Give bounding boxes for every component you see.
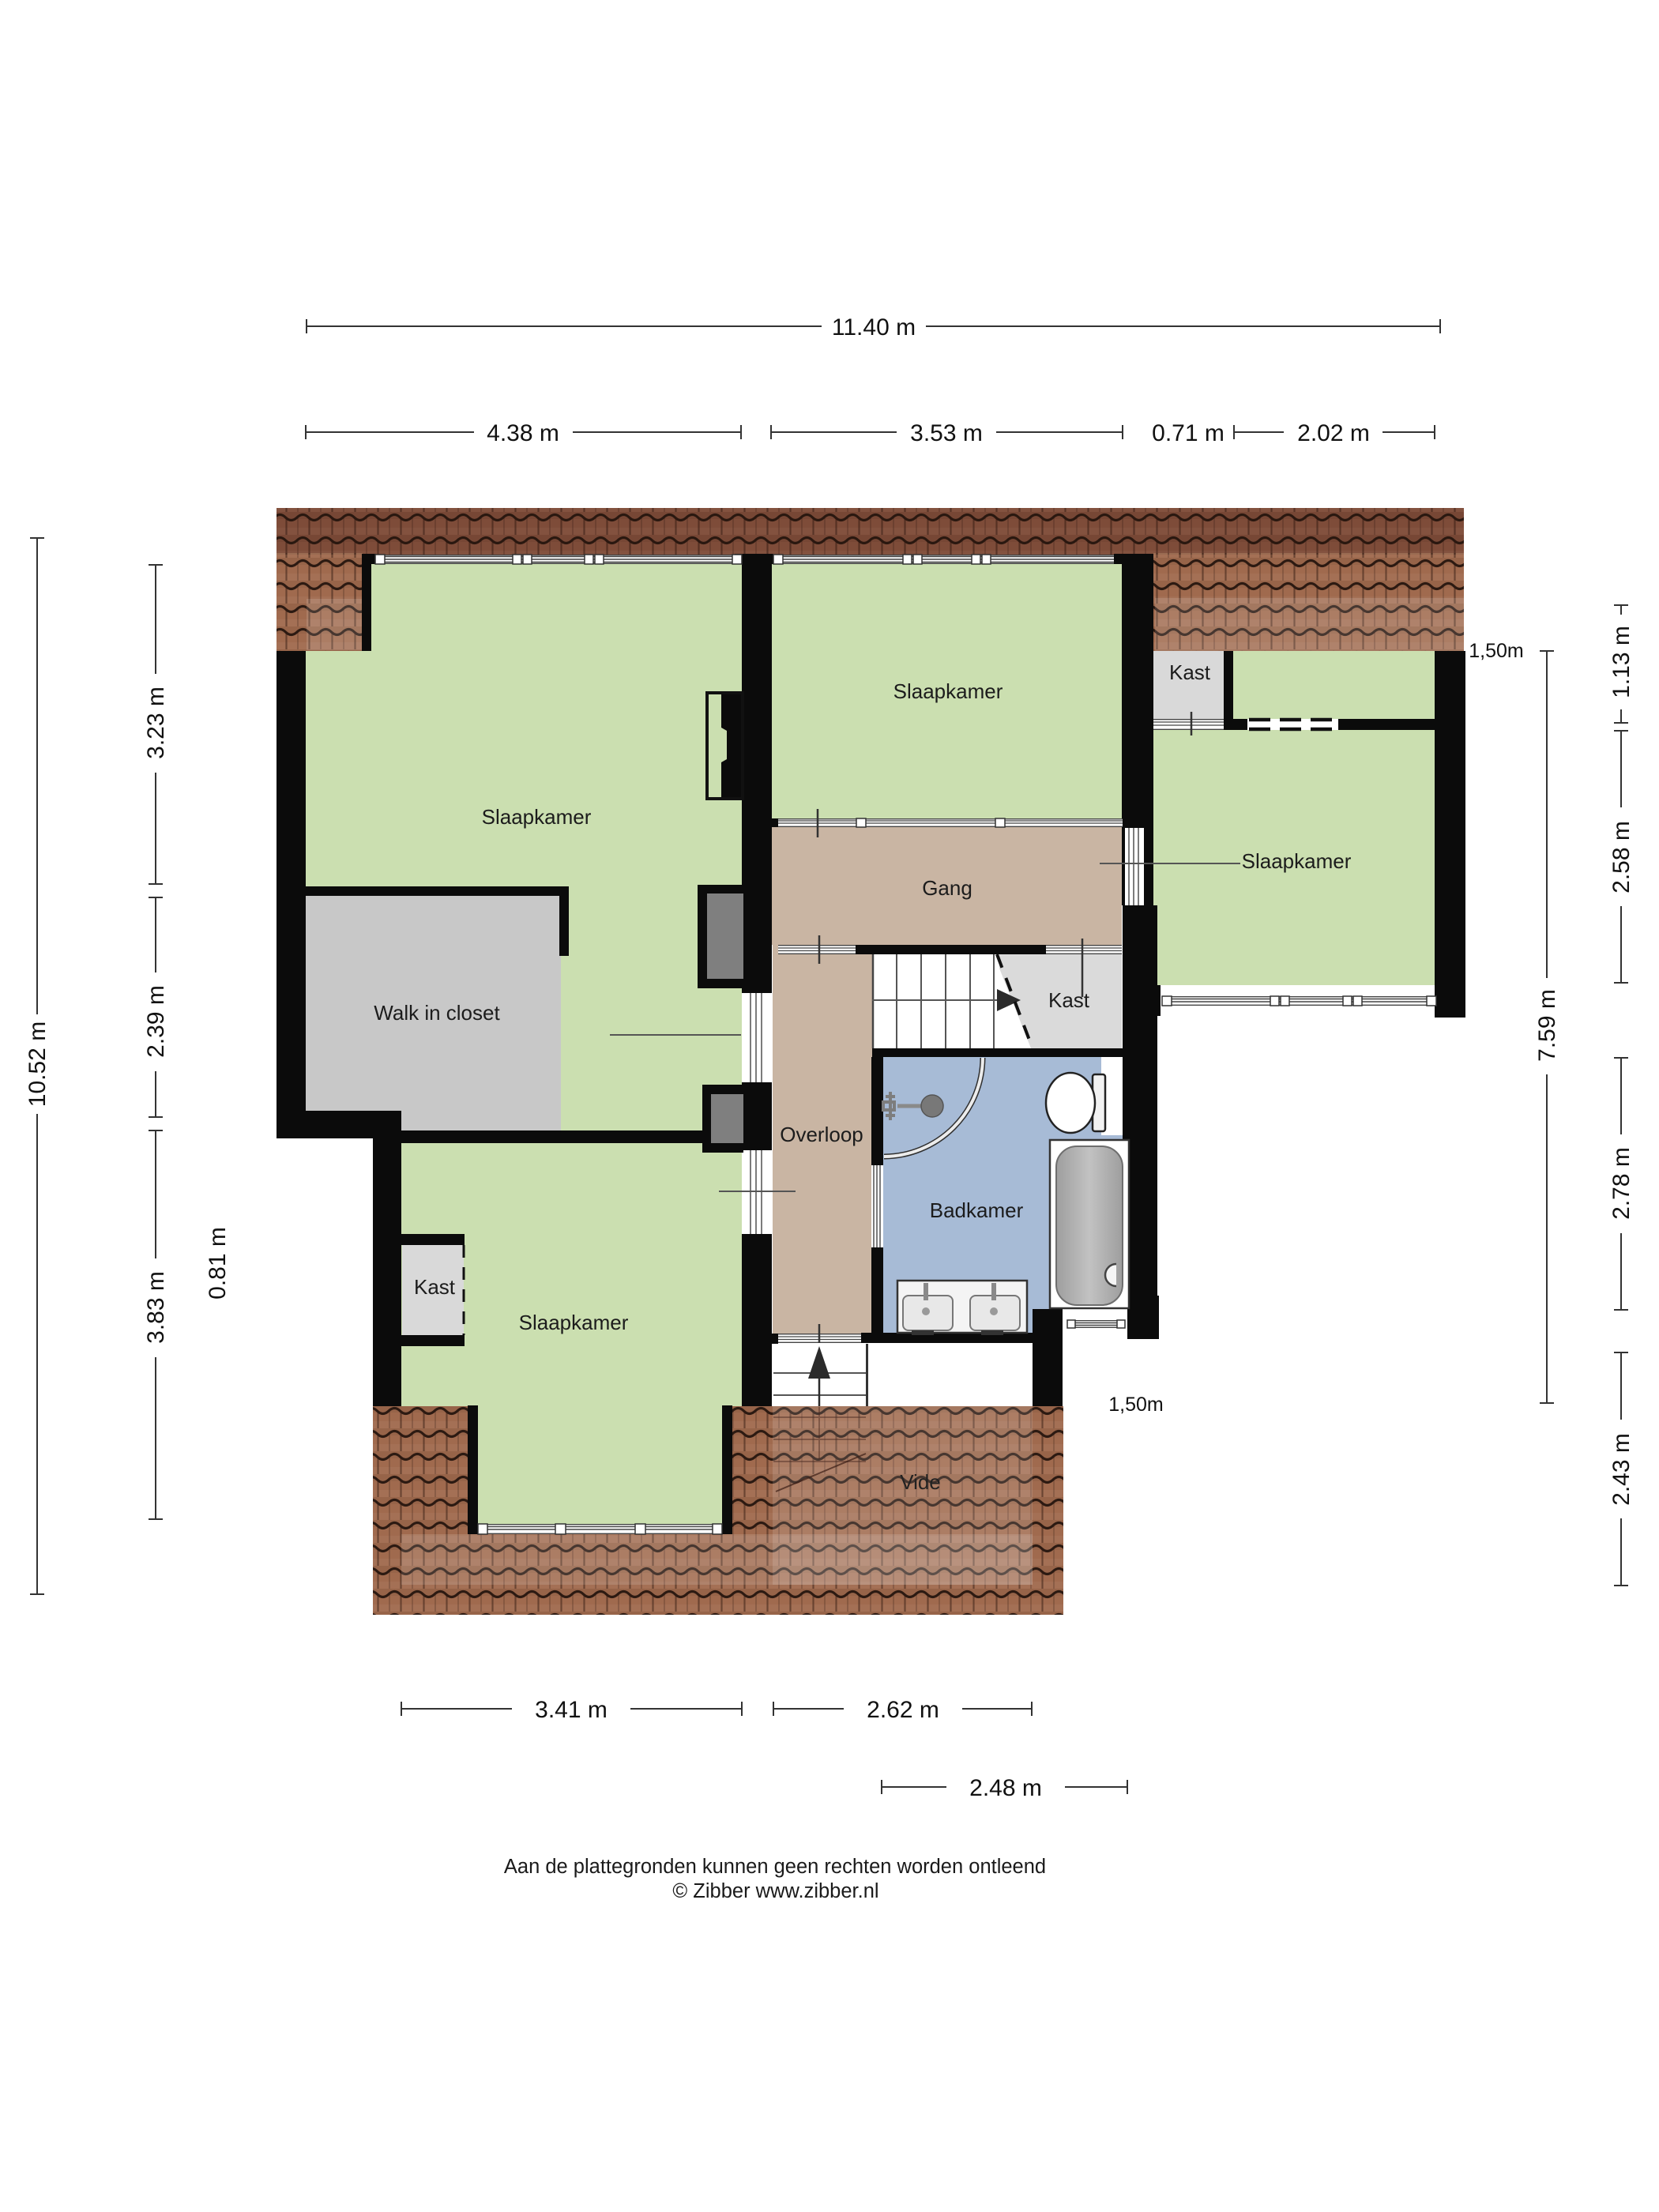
svg-text:2.58 m: 2.58 m <box>1608 821 1635 893</box>
svg-text:Vide: Vide <box>900 1470 941 1494</box>
svg-text:Aan de plattegronden kunnen ge: Aan de plattegronden kunnen geen rechten… <box>504 1856 1046 1878</box>
svg-text:Slaapkamer: Slaapkamer <box>893 679 1003 703</box>
svg-text:0.81 m: 0.81 m <box>205 1227 231 1300</box>
svg-text:Gang: Gang <box>922 876 972 900</box>
svg-text:2.39 m: 2.39 m <box>143 985 169 1058</box>
svg-text:2.48 m: 2.48 m <box>969 1775 1042 1801</box>
svg-text:Slaapkamer: Slaapkamer <box>519 1311 629 1334</box>
svg-text:2.62 m: 2.62 m <box>867 1697 939 1723</box>
svg-text:3.23 m: 3.23 m <box>143 687 169 759</box>
svg-text:Overloop: Overloop <box>780 1123 863 1146</box>
svg-text:1.13 m: 1.13 m <box>1608 626 1635 698</box>
svg-text:Badkamer: Badkamer <box>930 1198 1024 1222</box>
svg-text:Slaapkamer: Slaapkamer <box>1242 849 1352 873</box>
svg-text:Kast: Kast <box>414 1275 456 1299</box>
svg-text:3.83 m: 3.83 m <box>143 1271 169 1344</box>
svg-text:2.78 m: 2.78 m <box>1608 1147 1635 1220</box>
svg-text:Walk in closet: Walk in closet <box>374 1001 500 1025</box>
svg-text:2.43 m: 2.43 m <box>1608 1433 1635 1506</box>
svg-text:© Zibber www.zibber.nl: © Zibber www.zibber.nl <box>672 1880 878 1902</box>
svg-text:0.71 m: 0.71 m <box>1152 420 1224 446</box>
svg-text:4.38 m: 4.38 m <box>487 420 559 446</box>
svg-text:Kast: Kast <box>1169 660 1211 684</box>
svg-text:2.02 m: 2.02 m <box>1297 420 1370 446</box>
svg-text:1,50m: 1,50m <box>1108 1394 1163 1416</box>
svg-text:Kast: Kast <box>1048 988 1090 1012</box>
svg-text:7.59 m: 7.59 m <box>1534 989 1560 1062</box>
svg-text:Slaapkamer: Slaapkamer <box>482 805 592 829</box>
svg-text:10.52 m: 10.52 m <box>24 1021 51 1107</box>
svg-text:3.41 m: 3.41 m <box>535 1697 608 1723</box>
svg-text:1,50m: 1,50m <box>1469 640 1523 662</box>
svg-text:11.40 m: 11.40 m <box>832 314 916 340</box>
svg-text:3.53 m: 3.53 m <box>910 420 983 446</box>
